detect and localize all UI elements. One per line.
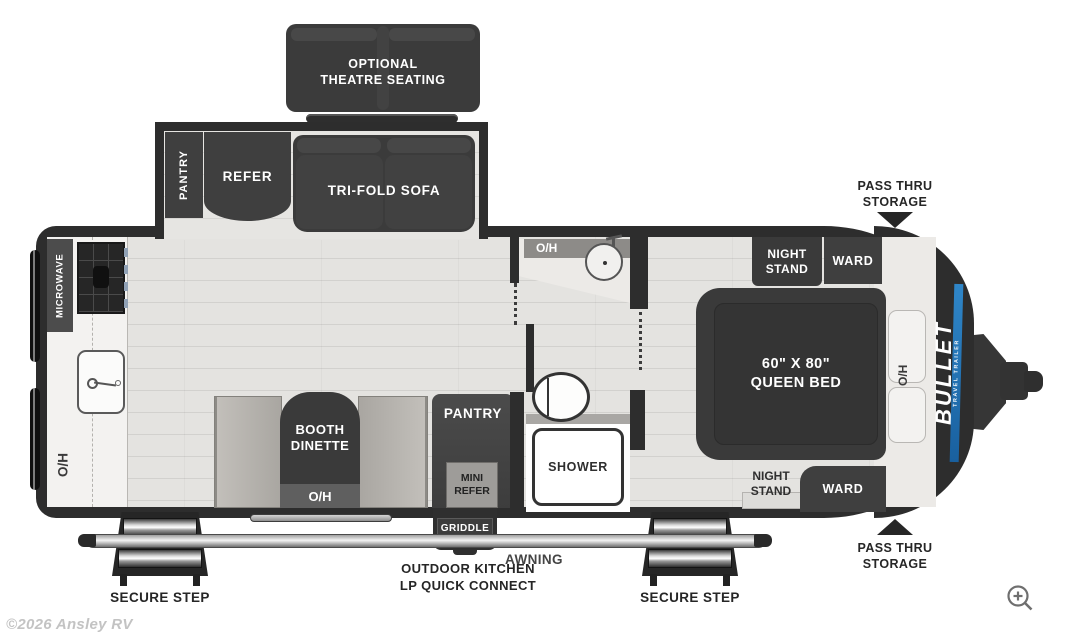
- magnifier-plus-icon: [1004, 582, 1038, 616]
- sofa-backrest: [297, 138, 381, 153]
- shower-label: SHOWER: [548, 460, 608, 474]
- pass-thru-bottom-label: PASS THRU STORAGE: [840, 540, 950, 572]
- dinette-overhead: O/H: [280, 484, 360, 508]
- kitchen-sink: [77, 350, 125, 414]
- hitch-coupler: [1024, 371, 1043, 392]
- bath-wall: [526, 324, 534, 392]
- mini-refer: MINI REFER: [446, 462, 498, 508]
- bath-wall: [630, 237, 648, 309]
- faucet-dot: [115, 380, 121, 386]
- shower-pan: SHOWER: [532, 428, 624, 506]
- sofa-label: TRI-FOLD SOFA: [293, 165, 475, 215]
- secure-step: [112, 512, 208, 588]
- refrigerator: REFER: [204, 132, 291, 221]
- tri-fold-sofa: TRI-FOLD SOFA: [293, 135, 475, 232]
- bath-wall: [510, 392, 524, 514]
- night-stand-top: NIGHT STAND: [752, 237, 822, 286]
- step-foot: [120, 574, 127, 586]
- microwave: MICROWAVE: [47, 239, 73, 332]
- cooktop-knobs: [124, 248, 128, 308]
- night-stand-bottom-label: NIGHT STAND: [734, 466, 808, 502]
- awning-end-cap: [754, 534, 772, 547]
- toilet: [532, 372, 590, 422]
- watermark: ©2026 Ansley RV: [6, 616, 133, 633]
- secure-step-right-label: SECURE STEP: [634, 589, 746, 606]
- dinette-bench: [358, 396, 428, 508]
- pantry-main: PANTRY MINI REFER: [432, 394, 514, 508]
- step-foot: [193, 574, 200, 586]
- step-tread: [118, 549, 202, 568]
- awning-label: AWNING: [496, 551, 572, 568]
- queen-bed-mattress: 60" X 80" QUEEN BED: [714, 303, 878, 445]
- dinette-label: BOOTH DINETTE: [280, 416, 360, 460]
- step-foot: [723, 574, 730, 586]
- dinette-table: BOOTH DINETTE: [280, 392, 360, 484]
- bath-wall: [510, 237, 519, 283]
- bath-sink: [585, 243, 623, 281]
- theatre-armrest: [291, 28, 377, 41]
- pantry-main-label: PANTRY: [432, 402, 514, 424]
- awning-end-cap: [78, 534, 96, 547]
- sofa-backrest: [387, 138, 471, 153]
- step-foot: [650, 574, 657, 586]
- baggage-door: [30, 250, 40, 362]
- bed-overhead-label: O/H: [893, 352, 913, 398]
- zoom-in-button[interactable]: [1004, 582, 1038, 616]
- step-tread: [648, 549, 732, 568]
- dinette-bench: [214, 396, 282, 508]
- secure-step: [642, 512, 738, 588]
- baggage-door: [30, 388, 40, 490]
- bath-faucet-icon: [612, 238, 615, 247]
- slideout-room: PANTRY REFER TRI-FOLD SOFA: [155, 122, 488, 239]
- bath-overhead-label: O/H: [536, 241, 557, 255]
- shower: SHOWER: [526, 424, 630, 512]
- lp-connect-tab: [453, 550, 477, 555]
- cooktop: [77, 242, 125, 314]
- grab-handle: [250, 514, 392, 522]
- bath-door-swing: [639, 312, 642, 370]
- secure-step-left-label: SECURE STEP: [104, 589, 216, 606]
- awning-bar: [86, 534, 766, 548]
- bath-wall: [630, 390, 645, 450]
- pass-thru-top-label: PASS THRU STORAGE: [840, 178, 950, 210]
- ward-bottom: WARD: [800, 466, 886, 512]
- pass-thru-bottom-arrow: [877, 519, 913, 535]
- cooktop-burner: [93, 266, 109, 288]
- theatre-seating-box: OPTIONAL THEATRE SEATING: [286, 24, 480, 112]
- kitchen-overhead-label: O/H: [52, 442, 74, 488]
- ward-top: WARD: [824, 237, 882, 284]
- slideout-pantry: PANTRY: [165, 132, 203, 218]
- theatre-armrest: [389, 28, 475, 41]
- bath-sink-drain: [603, 261, 607, 265]
- toilet-seat-line: [547, 378, 549, 416]
- theatre-label: OPTIONAL THEATRE SEATING: [286, 42, 480, 102]
- floorplan-viewer: OPTIONAL THEATRE SEATING PANTRY REFER TR…: [0, 0, 1065, 644]
- queen-bed: 60" X 80" QUEEN BED: [696, 288, 886, 460]
- bath-door-swing: [514, 283, 517, 325]
